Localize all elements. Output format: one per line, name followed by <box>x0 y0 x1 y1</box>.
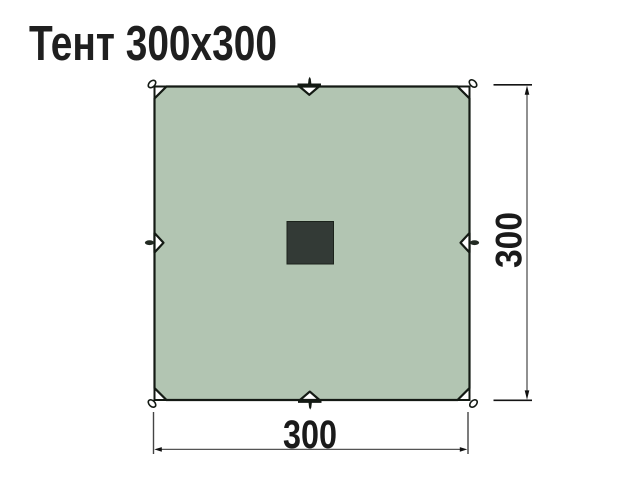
svg-text:300: 300 <box>489 212 530 268</box>
svg-text:Тент 300х300: Тент 300х300 <box>29 17 277 71</box>
svg-text:300: 300 <box>283 413 337 457</box>
